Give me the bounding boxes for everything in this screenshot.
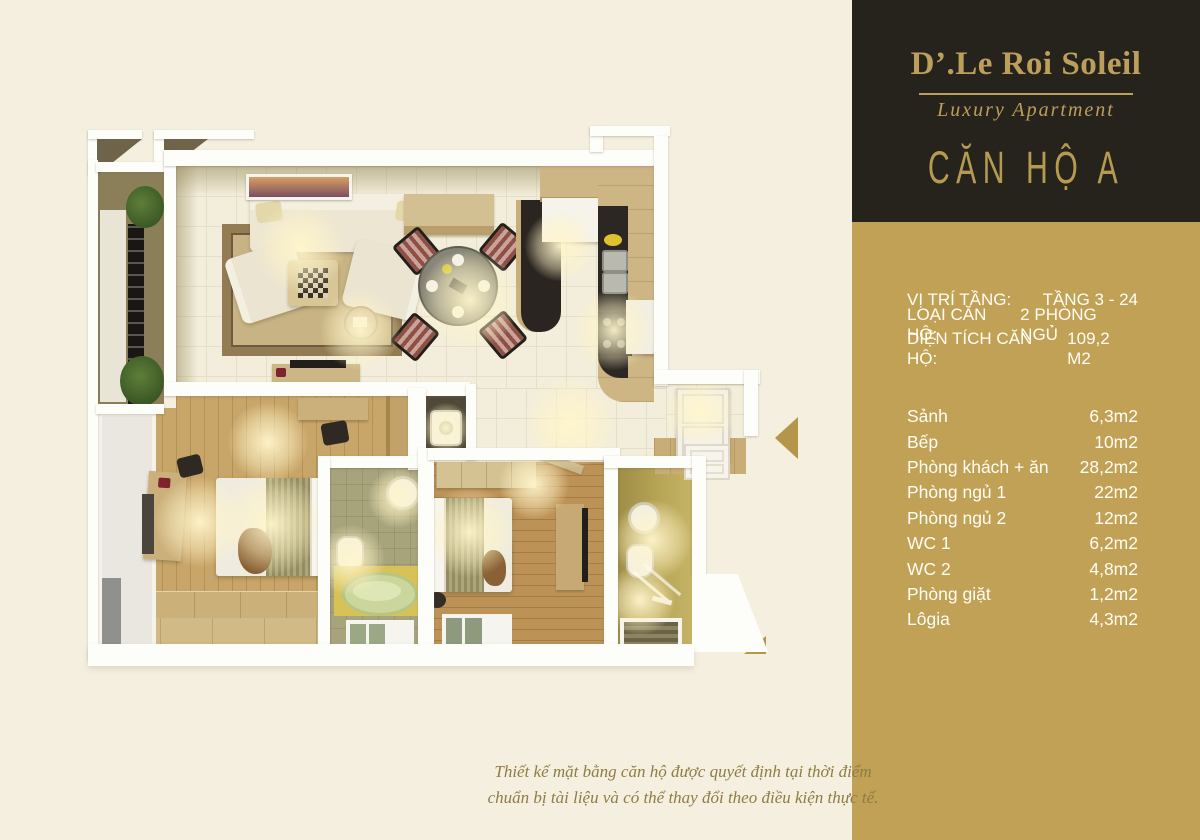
bedroom2-wardrobe bbox=[436, 462, 536, 488]
bed1-throw bbox=[238, 528, 272, 574]
brand-subtitle: Luxury Apartment bbox=[852, 99, 1200, 122]
detail-label: DIỆN TÍCH CĂN HỘ: bbox=[907, 329, 1067, 369]
plant-top bbox=[126, 186, 164, 228]
room-value: 6,2m2 bbox=[1089, 533, 1138, 554]
plant-bottom bbox=[120, 356, 164, 406]
entry-right-wall bbox=[744, 370, 758, 436]
room-row: Phòng ngủ 1 22m2 bbox=[907, 480, 1138, 505]
top-right-notch-h bbox=[590, 126, 670, 136]
disclaimer-line-2: chuẩn bị tài liệu và có thể thay đổi the… bbox=[433, 785, 933, 811]
room-value: 6,3m2 bbox=[1089, 406, 1138, 427]
room-label: Phòng ngủ 1 bbox=[907, 482, 1006, 503]
dressing-table bbox=[298, 398, 368, 420]
living-wall-shading-left bbox=[176, 166, 198, 392]
wc1-top-wall bbox=[318, 456, 432, 468]
room-label: Bếp bbox=[907, 432, 938, 453]
bedroom2-tv-screen bbox=[582, 508, 588, 582]
tv-decor-red bbox=[276, 368, 286, 377]
brand-title: D’.Le Roi Soleil bbox=[852, 46, 1200, 83]
kitchen-sink-basin1 bbox=[602, 250, 628, 272]
wc2-toilet bbox=[626, 544, 654, 578]
bedroom2-tv-unit bbox=[556, 504, 584, 590]
bedroom2-bed bbox=[432, 498, 512, 592]
bedroom1-mirror bbox=[142, 494, 154, 554]
room-area-list: Sảnh 6,3m2 Bếp 10m2 Phòng khách + ăn 28,… bbox=[907, 404, 1138, 633]
brochure-page: D’.Le Roi Soleil Luxury Apartment CĂN HỘ… bbox=[0, 0, 1200, 840]
room-value: 4,8m2 bbox=[1089, 559, 1138, 580]
room-label: Sảnh bbox=[907, 406, 948, 427]
room-row: Phòng khách + ăn 28,2m2 bbox=[907, 455, 1138, 480]
logia-cap-top bbox=[96, 162, 164, 172]
room-row: WC 1 6,2m2 bbox=[907, 531, 1138, 556]
room-label: Phòng ngủ 2 bbox=[907, 508, 1006, 529]
wall-fin1-horizontal bbox=[88, 130, 142, 139]
dressing-chair bbox=[320, 420, 349, 446]
room-label: WC 1 bbox=[907, 533, 951, 554]
brand-panel: D’.Le Roi Soleil Luxury Apartment CĂN HỘ… bbox=[852, 0, 1200, 222]
room-value: 22m2 bbox=[1094, 482, 1138, 503]
room-value: 1,2m2 bbox=[1089, 584, 1138, 605]
sofa-pillow-left bbox=[255, 200, 284, 223]
wall-fin2-horizontal bbox=[154, 130, 254, 139]
wc2-sink bbox=[628, 502, 660, 534]
wall-bedroom2-wc2 bbox=[604, 456, 618, 656]
room-row: Bếp 10m2 bbox=[907, 429, 1138, 454]
room-label: Phòng giặt bbox=[907, 584, 991, 605]
room-row: Sảnh 6,3m2 bbox=[907, 404, 1138, 429]
room-value: 4,3m2 bbox=[1089, 609, 1138, 630]
wc1-left-wall bbox=[318, 456, 330, 656]
detail-row: DIỆN TÍCH CĂN HỘ: 109,2 M2 bbox=[907, 337, 1138, 362]
entry-arrow-icon bbox=[775, 417, 798, 459]
washing-machine bbox=[430, 410, 462, 446]
room-label: Lôgia bbox=[907, 609, 950, 630]
wc2-right-wall bbox=[692, 456, 706, 576]
bed2-headboard bbox=[432, 498, 446, 592]
brand-underline bbox=[919, 93, 1133, 95]
detail-value: 109,2 M2 bbox=[1067, 329, 1138, 369]
bottom-slab bbox=[88, 644, 694, 666]
bedroom1-platform bbox=[148, 592, 318, 620]
room-value: 12m2 bbox=[1094, 508, 1138, 529]
tv-screen bbox=[290, 360, 346, 368]
room-label: WC 2 bbox=[907, 559, 951, 580]
room-label: Phòng khách + ăn bbox=[907, 457, 1049, 478]
room-row: Phòng giặt 1,2m2 bbox=[907, 582, 1138, 607]
disclaimer-line-1: Thiết kế mặt bằng căn hộ được quyết định… bbox=[433, 759, 933, 785]
kitchen-sink-basin2 bbox=[602, 272, 628, 294]
living-left-wall bbox=[164, 150, 176, 394]
room-value: 10m2 bbox=[1094, 432, 1138, 453]
wall-wc1-bedroom2 bbox=[418, 448, 434, 656]
kitchen-flowers bbox=[604, 234, 622, 246]
room-value: 28,2m2 bbox=[1080, 457, 1138, 478]
right-wall bbox=[654, 136, 668, 386]
bed2-drape bbox=[446, 498, 484, 592]
room-row: Lôgia 4,3m2 bbox=[907, 607, 1138, 632]
bottom-right-wall-mass bbox=[692, 574, 768, 652]
logia-cap-bottom bbox=[96, 404, 164, 414]
bed2-throw bbox=[482, 550, 506, 586]
room-row: WC 2 4,8m2 bbox=[907, 556, 1138, 581]
floor-plan bbox=[0, 0, 800, 840]
wc2-top-wall bbox=[604, 456, 700, 468]
chessboard bbox=[298, 268, 328, 298]
disclaimer: Thiết kế mặt bằng căn hộ được quyết định… bbox=[433, 759, 933, 811]
kitchen-upper-cabinet bbox=[542, 198, 600, 242]
room-row: Phòng ngủ 2 12m2 bbox=[907, 506, 1138, 531]
wc1-sink bbox=[386, 476, 420, 510]
dining-table bbox=[418, 246, 498, 326]
top-wall bbox=[164, 150, 656, 166]
bedroom2-top-wall bbox=[428, 448, 620, 460]
side-table bbox=[344, 306, 378, 340]
apartment-details: VỊ TRÍ TẦNG: TẦNG 3 - 24 LOẠI CĂN HỘ: 2 … bbox=[907, 288, 1138, 362]
wc1-bathtub bbox=[342, 572, 418, 616]
coffee-table bbox=[288, 260, 338, 306]
bed1-drape bbox=[266, 478, 310, 576]
picture-frame bbox=[246, 174, 352, 200]
unit-name: CĂN HỘ A bbox=[901, 142, 1152, 194]
bedroom1-bed bbox=[216, 478, 322, 576]
